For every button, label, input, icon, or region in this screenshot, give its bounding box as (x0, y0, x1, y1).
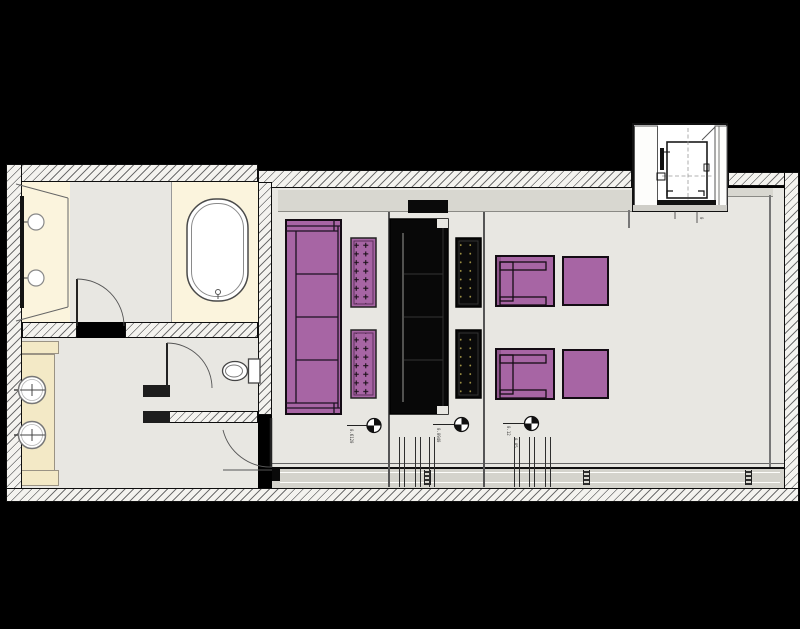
window-band (272, 467, 784, 488)
level-annotation-2: 0.0940 (436, 428, 440, 442)
window-mullion (415, 437, 421, 487)
elevator-annotation: 0 (699, 217, 703, 219)
window-mullion (399, 437, 405, 487)
wall-top-living (258, 170, 632, 188)
wall-wc-bottom (168, 411, 258, 423)
ceiling-soffit-band (278, 190, 632, 212)
floor-plan-canvas: 0.6120 0.0940 0.12 0.85 0 (0, 0, 800, 629)
zone-partition-line-2 (483, 212, 485, 487)
window-band-end-cap (272, 467, 280, 481)
wall-bottom (6, 488, 799, 502)
wall-bathroom-bottom-right (125, 322, 258, 338)
level-annotation-1: 0.6120 (349, 429, 353, 443)
bathroom-middle-floor (70, 182, 172, 322)
facade-column-3 (745, 470, 752, 485)
bathroom-vanity-floor (22, 182, 70, 322)
level-annotation-3b: 0.85 (513, 438, 517, 448)
elevator-machinery-icon (657, 148, 709, 180)
wall-top-bathroom (6, 164, 258, 182)
soffit-black-panel (408, 200, 448, 213)
wall-bathroom-bottom-left (22, 322, 77, 338)
wall-top-right (728, 172, 786, 186)
elevator-wall-stub-line (628, 210, 630, 228)
window-mullion (429, 437, 435, 487)
zone-partition-line-1 (388, 212, 390, 487)
vanity-counter-column (18, 354, 55, 471)
wc-wall-stub-lower (143, 411, 170, 423)
window-mullion (529, 437, 535, 487)
window-sill-line (272, 463, 784, 464)
window-mullion (545, 437, 551, 487)
ceiling-soffit-band-right (727, 188, 773, 197)
wall-left (6, 164, 22, 502)
facade-column-2 (583, 470, 590, 485)
level-annotation-3a: 0.12 (506, 426, 510, 436)
wall-right (784, 172, 799, 502)
wc-wall-stub-upper (143, 385, 170, 397)
bathroom-partition-line (171, 182, 172, 322)
window-jamb-line (769, 195, 771, 467)
vanity-counter-bottom-cap (16, 470, 59, 486)
wall-divider-bathroom-living (258, 182, 272, 415)
vanity-counter-top-cap (16, 341, 59, 354)
bathtub-room-floor (172, 182, 258, 322)
